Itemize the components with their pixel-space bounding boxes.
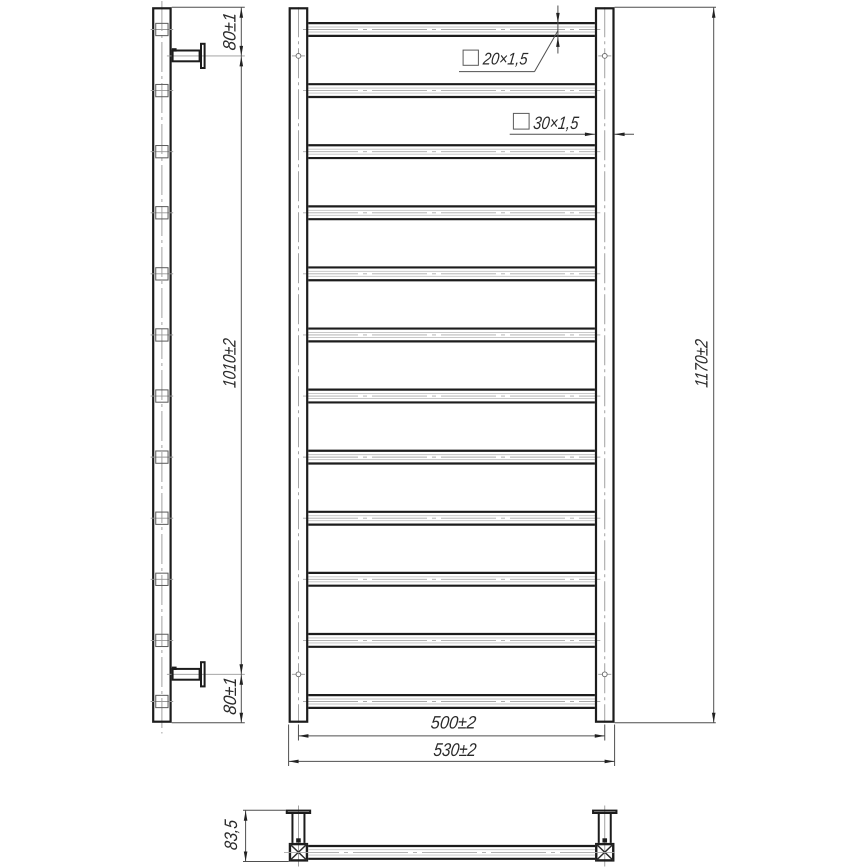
- svg-text:20×1,5: 20×1,5: [481, 49, 529, 68]
- svg-text:530±2: 530±2: [433, 739, 479, 760]
- svg-text:500±2: 500±2: [430, 713, 477, 733]
- svg-text:30×1,5: 30×1,5: [532, 113, 580, 133]
- svg-text:1170±2: 1170±2: [692, 338, 712, 388]
- svg-text:1010±2: 1010±2: [220, 337, 240, 388]
- svg-text:80±1: 80±1: [220, 676, 240, 716]
- svg-text:80±1: 80±1: [220, 11, 240, 51]
- svg-text:83,5: 83,5: [221, 818, 241, 851]
